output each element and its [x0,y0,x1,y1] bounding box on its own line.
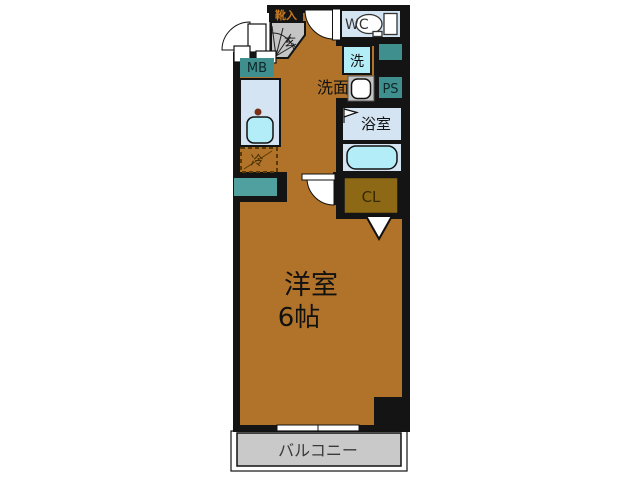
closet-label: CL [362,188,381,206]
counter-niche [234,178,277,196]
wc-door-leaf-icon [333,9,341,40]
washer-label: 洗 [350,54,364,70]
vanity-basin-icon [352,79,371,99]
stove-burner-icon [255,109,262,116]
bathroom-label: 浴室 [361,115,391,133]
floor-plan: 靴入 玄 MB WC 洗 洗面 PS 浴室 [0,0,640,480]
shoe-cabinet-label: 靴入 [275,8,297,22]
utility-block [379,44,402,60]
wall-left [233,52,240,432]
pillar [374,397,402,427]
pipe-space-label: PS [382,82,398,97]
floor-plan-page: 靴入 玄 MB WC 洗 洗面 PS 浴室 [0,0,640,480]
bathtub-icon [347,146,397,169]
meter-box-label: MB [247,61,267,76]
kitchen-sink-icon [247,117,273,143]
entrance-door-leaf-icon [248,24,266,52]
washroom-label: 洗面 [317,78,349,97]
entrance-label: 玄 [284,34,296,49]
wc-label: WC [345,17,369,33]
main-room-size-label: 6帖 [278,303,321,333]
main-room-label: 洋室 [284,270,338,301]
balcony-label: バルコニー [278,441,358,460]
refrigerator-label: 冷 [250,154,263,169]
room-door-leaf-icon [302,174,335,180]
